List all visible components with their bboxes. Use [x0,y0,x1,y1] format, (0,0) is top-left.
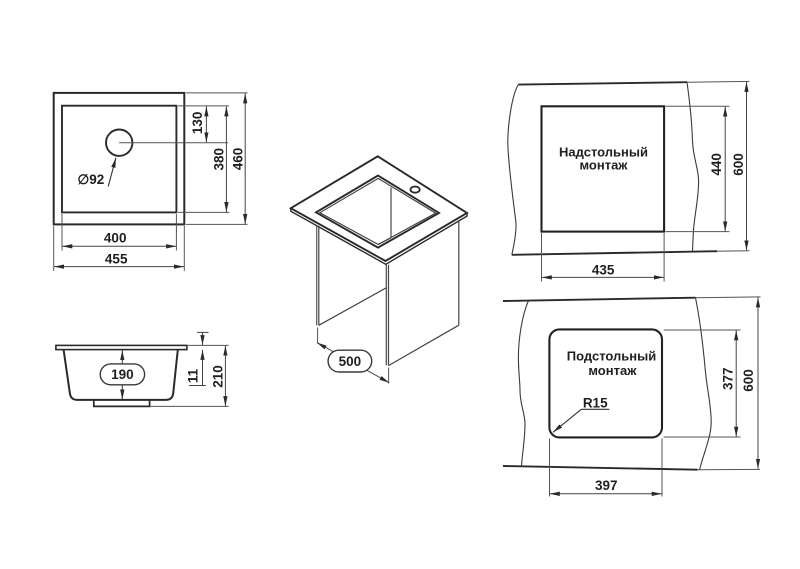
svg-text:377: 377 [721,367,736,390]
svg-text:600: 600 [741,369,756,392]
svg-text:460: 460 [230,148,245,171]
svg-text:190: 190 [111,367,134,382]
svg-text:Подстольный: Подстольный [567,349,656,364]
svg-text:210: 210 [210,365,225,388]
svg-text:400: 400 [104,230,127,245]
svg-text:455: 455 [105,251,128,266]
svg-text:11: 11 [185,368,200,383]
svg-text:397: 397 [595,478,618,493]
svg-text:500: 500 [339,354,362,369]
svg-text:∅92: ∅92 [78,172,105,187]
svg-text:монтаж: монтаж [579,158,628,173]
svg-text:600: 600 [731,153,746,176]
svg-text:435: 435 [592,262,615,277]
svg-text:440: 440 [709,153,724,176]
svg-text:130: 130 [190,112,205,135]
svg-text:380: 380 [211,148,226,171]
svg-text:R15: R15 [583,396,608,411]
svg-text:монтаж: монтаж [588,363,637,378]
